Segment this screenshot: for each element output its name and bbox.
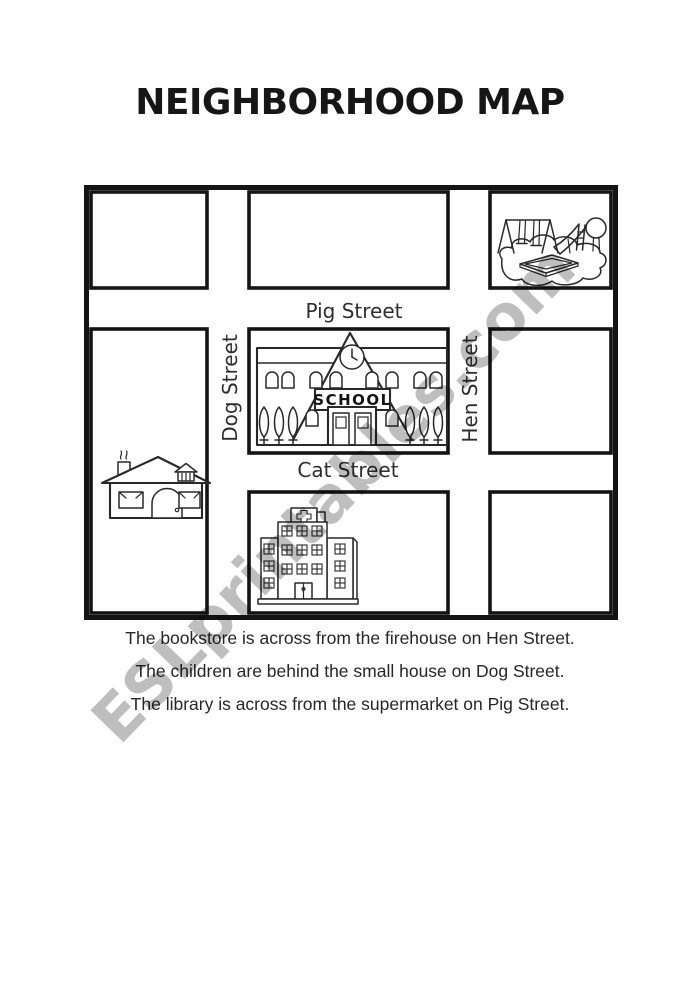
street-label-pig: Pig Street: [305, 299, 402, 323]
sentence-1: The bookstore is across from the firehou…: [0, 622, 700, 655]
school-icon: SCHOOL: [257, 333, 447, 445]
block-top-left: [91, 192, 207, 288]
street-label-cat: Cat Street: [297, 458, 398, 482]
sentence-list: The bookstore is across from the firehou…: [0, 622, 700, 721]
sentence-3: The library is across from the supermark…: [0, 688, 700, 721]
block-middle-right: [490, 329, 611, 453]
block-top-middle: [249, 192, 448, 288]
worksheet-page: NEIGHBORHOOD MAP: [0, 0, 700, 990]
block-bottom-right: [490, 492, 611, 613]
street-label-hen: Hen Street: [458, 335, 482, 442]
page-title: NEIGHBORHOOD MAP: [0, 82, 700, 123]
street-label-dog: Dog Street: [218, 334, 242, 442]
neighborhood-map: Pig Street Cat Street Dog Street Hen Str…: [84, 185, 618, 620]
sentence-2: The children are behind the small house …: [0, 655, 700, 688]
